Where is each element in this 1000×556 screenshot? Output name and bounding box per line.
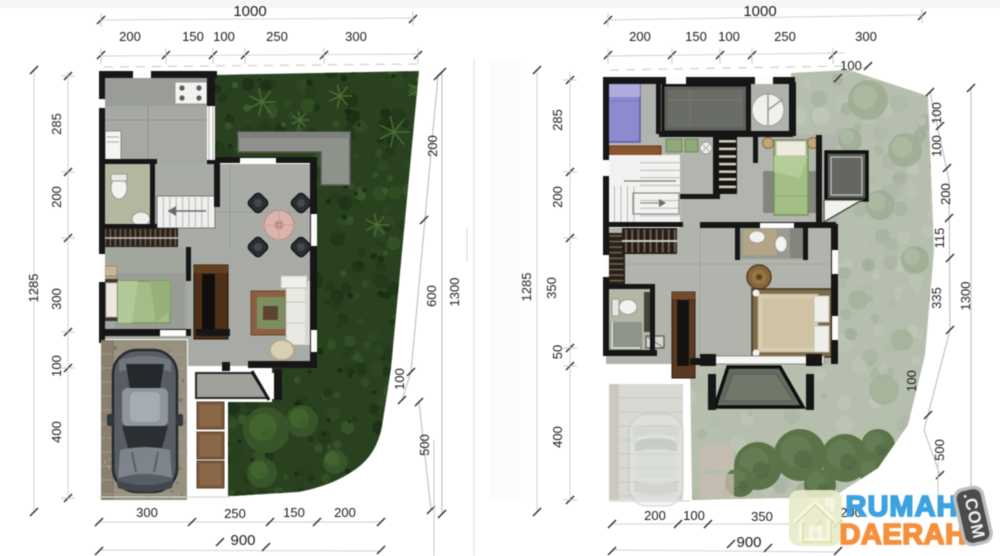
svg-text:200: 200 (119, 29, 141, 44)
svg-text:285: 285 (49, 113, 64, 135)
svg-text:100: 100 (718, 29, 740, 44)
svg-text:200: 200 (49, 186, 64, 208)
svg-text:300: 300 (855, 29, 877, 44)
svg-text:250: 250 (266, 29, 288, 44)
svg-text:50: 50 (550, 345, 565, 359)
svg-text:900: 900 (736, 534, 761, 551)
svg-text:350: 350 (544, 277, 559, 299)
svg-text:100: 100 (929, 102, 944, 124)
svg-text:500: 500 (417, 434, 432, 456)
svg-text:1285: 1285 (519, 273, 534, 302)
svg-text:1000: 1000 (233, 3, 266, 20)
svg-text:1300: 1300 (447, 278, 462, 307)
svg-text:100: 100 (392, 368, 407, 390)
svg-text:300: 300 (49, 288, 64, 310)
svg-text:115: 115 (932, 228, 947, 249)
svg-text:600: 600 (424, 285, 439, 307)
svg-text:200: 200 (938, 183, 953, 205)
svg-text:300: 300 (136, 505, 158, 520)
svg-text:200: 200 (644, 508, 666, 523)
svg-text:100: 100 (904, 370, 919, 392)
svg-text:200: 200 (550, 186, 565, 208)
svg-text:100: 100 (840, 58, 862, 73)
svg-text:100: 100 (683, 508, 705, 523)
svg-text:1000: 1000 (743, 3, 776, 20)
svg-text:200: 200 (334, 505, 356, 520)
svg-text:1300: 1300 (958, 282, 973, 311)
svg-text:200: 200 (425, 135, 440, 157)
svg-text:350: 350 (751, 509, 773, 524)
svg-text:285: 285 (550, 109, 565, 131)
svg-text:335: 335 (929, 287, 944, 309)
svg-text:400: 400 (550, 426, 565, 448)
svg-text:100: 100 (49, 355, 64, 377)
svg-text:100: 100 (213, 29, 235, 44)
svg-text:150: 150 (685, 29, 707, 44)
svg-text:1285: 1285 (26, 274, 41, 303)
svg-text:100: 100 (929, 135, 944, 157)
svg-text:300: 300 (345, 29, 367, 44)
svg-text:150: 150 (283, 505, 305, 520)
svg-text:900: 900 (230, 532, 255, 549)
svg-text:150: 150 (182, 29, 204, 44)
svg-text:250: 250 (224, 506, 246, 521)
svg-text:200: 200 (629, 29, 651, 44)
svg-text:250: 250 (774, 29, 796, 44)
svg-text:500: 500 (932, 439, 947, 461)
svg-text:DAERAH: DAERAH (839, 519, 966, 551)
svg-text:400: 400 (49, 421, 64, 443)
